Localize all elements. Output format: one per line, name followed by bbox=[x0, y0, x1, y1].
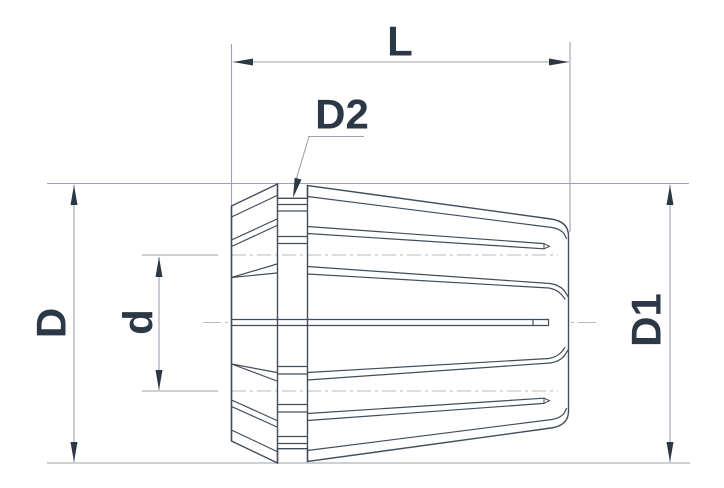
arrow-d1-bottom bbox=[667, 442, 674, 462]
arrow-d-bore-bottom bbox=[156, 370, 163, 390]
label-outer-diameter-right: D1 bbox=[623, 293, 670, 347]
arrow-l-left bbox=[233, 59, 253, 66]
label-outer-diameter-left: D bbox=[28, 308, 75, 338]
arrow-l-right bbox=[549, 59, 569, 66]
collet-body-fill bbox=[232, 184, 569, 463]
arrow-d-outer-bottom bbox=[71, 442, 78, 462]
arrow-d-outer-top bbox=[71, 185, 78, 205]
technical-drawing-canvas: L D2 D d D1 bbox=[0, 0, 724, 488]
collet-diagram: L D2 D d D1 bbox=[0, 0, 724, 488]
label-neck-diameter: D2 bbox=[315, 91, 369, 138]
label-length: L bbox=[387, 18, 413, 65]
arrow-d-bore-top bbox=[156, 257, 163, 277]
label-bore-diameter: d bbox=[115, 309, 162, 335]
arrow-d1-top bbox=[667, 185, 674, 205]
arrow-d2-leader bbox=[293, 178, 302, 198]
d2-leader-line bbox=[296, 137, 309, 181]
